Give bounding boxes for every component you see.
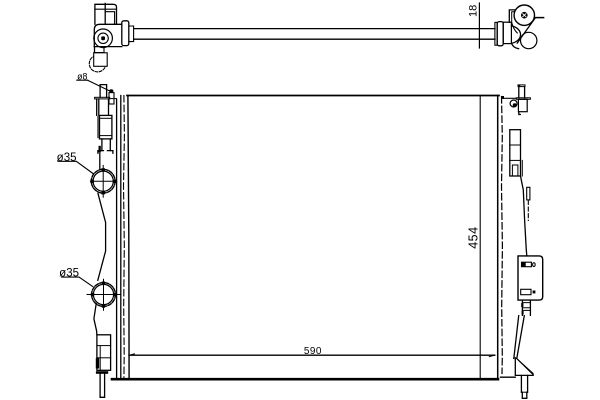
svg-text:ø35: ø35 (57, 152, 77, 164)
svg-text:ø8: ø8 (77, 71, 87, 81)
svg-text:18: 18 (468, 5, 480, 17)
svg-text:454: 454 (467, 226, 481, 248)
svg-text:590: 590 (304, 346, 322, 357)
svg-text:ø35: ø35 (59, 268, 79, 280)
